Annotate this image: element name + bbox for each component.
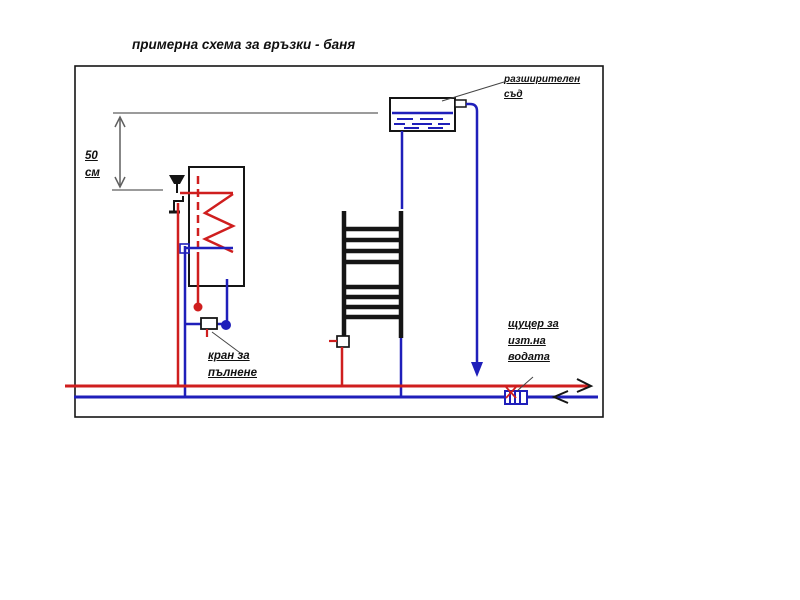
expansion-tank-label: разширителен съд <box>504 72 580 102</box>
overflow-arrow-down <box>471 362 483 377</box>
vessel-nozzle <box>455 100 466 107</box>
pointer-lines <box>212 82 533 391</box>
vessel-pointer-line <box>442 82 504 101</box>
overflow-pipe <box>466 104 477 362</box>
drain-nozzle-label: щуцер за изт.на водата <box>508 316 559 366</box>
fill-valve-symbol <box>201 318 217 329</box>
dimension-value: 50 <box>85 148 100 165</box>
drain-nozzle-label-line2: изт.на <box>508 333 559 350</box>
schematic-drawing <box>0 0 800 600</box>
dimension-unit: см <box>85 165 100 182</box>
diagram-canvas: примерна схема за връзки - баня <box>0 0 800 600</box>
fill-valve-label-line1: кран за <box>208 348 257 365</box>
towel-radiator <box>344 211 401 338</box>
fill-valve-label: кран за пълнене <box>208 348 257 381</box>
fill-valve-label-line2: пълнене <box>208 365 257 382</box>
expansion-tank-label-line1: разширителен <box>504 72 580 87</box>
dimension-label: 50 см <box>85 148 100 182</box>
drain-nozzle-label-line3: водата <box>508 349 559 366</box>
boiler <box>180 167 244 330</box>
drain-nozzle-label-line1: щуцер за <box>508 316 559 333</box>
expansion-tank-label-line2: съд <box>504 87 580 102</box>
hot-outlet-dot <box>194 303 203 312</box>
radiator-valve-symbol <box>337 336 349 347</box>
drain-pointer-line <box>517 377 533 391</box>
expansion-vessel <box>390 98 483 377</box>
drain-fitting-symbol <box>505 387 527 404</box>
